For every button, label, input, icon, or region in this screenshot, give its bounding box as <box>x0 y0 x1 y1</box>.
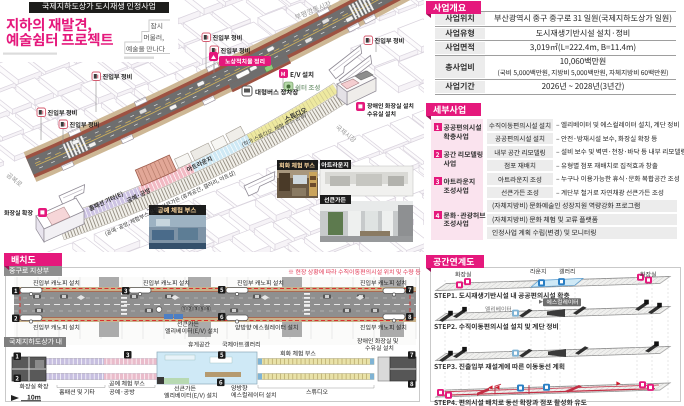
svg-text:화장실 확장: 화장실 확장 <box>20 382 49 391</box>
svg-text:◄◄: ◄◄ <box>487 382 501 392</box>
svg-text:쉼터 조성: 쉼터 조성 <box>295 82 320 92</box>
svg-text:예술을 만나다: 예술을 만나다 <box>126 44 166 54</box>
svg-text:STEP2. 수직이동편의시설 설치 및 계단 정비: STEP2. 수직이동편의시설 설치 및 계단 정비 <box>434 321 559 331</box>
svg-text:엘리베이터: 엘리베이터 <box>485 304 512 313</box>
svg-text:곰복로: 곰복로 <box>5 170 25 189</box>
svg-text:5: 5 <box>220 285 224 294</box>
svg-text:홈패션 및 기타: 홈패션 및 기타 <box>59 387 95 396</box>
svg-text:국제아트갤러리: 국제아트갤러리 <box>222 340 261 349</box>
svg-text:진입부 정비: 진입부 정비 <box>48 108 78 117</box>
svg-text:►: ► <box>615 378 622 388</box>
svg-text:진입부 정비: 진입부 정비 <box>375 36 405 45</box>
svg-text:진입부 정비: 진입부 정비 <box>213 33 243 42</box>
svg-text:화장실: 화장실 <box>455 269 472 278</box>
svg-text:수유실 설치: 수유실 설치 <box>365 343 394 352</box>
svg-text:진입부 정비: 진입부 정비 <box>70 120 100 129</box>
svg-text:①②③⑤⑥: ①②③⑤⑥ <box>181 304 211 313</box>
svg-text:공예·공방: 공예·공방 <box>109 387 135 396</box>
svg-text:1: 1 <box>14 286 18 295</box>
svg-text:7: 7 <box>410 350 414 359</box>
svg-text:8: 8 <box>410 379 414 388</box>
svg-text:10m: 10m <box>27 392 41 402</box>
svg-text:※ 현장 상황에 따라 수직이동편의시설 위치 및 수량 등: ※ 현장 상황에 따라 수직이동편의시설 위치 및 수량 등 변경될 수 있음 <box>288 267 421 276</box>
svg-text:엘리베이터(E/V) 설치: 엘리베이터(E/V) 설치 <box>164 391 217 400</box>
svg-text:잠시: 잠시 <box>150 21 163 31</box>
svg-text:노상적치물 정리: 노상적치물 정리 <box>225 57 265 66</box>
svg-text:갤러리: 갤러리 <box>559 266 576 275</box>
svg-text:휴게공간: 휴게공간 <box>188 340 211 349</box>
svg-text:회화 체험 부스: 회화 체험 부스 <box>279 161 315 170</box>
svg-text:공예 체험 부스: 공예 체험 부스 <box>109 379 145 388</box>
svg-text:3: 3 <box>124 286 128 295</box>
svg-text:진입부 캐노피 설치: 진입부 캐노피 설치 <box>33 323 80 332</box>
svg-text:화장실: 화장실 <box>640 269 657 278</box>
svg-text:회화 체험 부스: 회화 체험 부스 <box>280 349 316 358</box>
svg-text:1: 1 <box>15 351 19 360</box>
svg-text:진입부 캐노피 설치: 진입부 캐노피 설치 <box>360 278 407 287</box>
svg-text:7: 7 <box>408 285 412 294</box>
svg-text:6: 6 <box>220 312 224 321</box>
svg-text:STEP3. 진출입부 재설계에 따른 이동동선 계획: STEP3. 진출입부 재설계에 따른 이동동선 계획 <box>434 361 565 371</box>
svg-text:라운지: 라운지 <box>530 266 547 275</box>
svg-text:진입부 정비: 진입부 정비 <box>221 46 251 55</box>
svg-text:화장실 확장: 화장실 확장 <box>4 208 33 217</box>
svg-text:에스컬레이터: 에스컬레이터 <box>547 297 579 306</box>
svg-text:진입부 캐노피 설치: 진입부 캐노피 설치 <box>143 278 190 287</box>
svg-text:에스컬레이터 설치: 에스컬레이터 설치 <box>231 390 277 399</box>
svg-text:진입부 정비: 진입부 정비 <box>103 72 133 81</box>
svg-text:머물러,: 머물러, <box>143 32 164 42</box>
svg-text:진입부 캐노피 설치: 진입부 캐노피 설치 <box>33 278 80 287</box>
svg-text:5: 5 <box>220 350 224 359</box>
svg-text:진입부 캐노피 설치: 진입부 캐노피 설치 <box>360 323 407 332</box>
svg-text:3: 3 <box>126 350 130 359</box>
svg-text:STEP4. 편의시설 배치로 동선 확장과 점포 활성화: STEP4. 편의시설 배치로 동선 확장과 점포 활성화 유도 <box>434 397 587 406</box>
svg-text:6: 6 <box>219 378 223 387</box>
svg-text:양방향 에스컬레이터 설치: 양방향 에스컬레이터 설치 <box>235 323 298 332</box>
svg-text:M: M <box>281 70 286 78</box>
svg-text:스튜디오: 스튜디오 <box>306 387 329 396</box>
svg-text:E/V 설치: E/V 설치 <box>290 69 314 79</box>
svg-text:아트라운지: 아트라운지 <box>321 160 349 169</box>
svg-text:수유실 설치: 수유실 설치 <box>367 109 396 118</box>
svg-text:8: 8 <box>408 312 412 321</box>
svg-text:진입부 캐노피 설치: 진입부 캐노피 설치 <box>237 278 284 287</box>
svg-text:2: 2 <box>14 313 18 322</box>
svg-text:엘리베이터(E/V) 설치: 엘리베이터(E/V) 설치 <box>165 326 218 335</box>
svg-text:대형버스 정차장: 대형버스 정차장 <box>255 87 298 97</box>
svg-text:선큰가든: 선큰가든 <box>324 195 347 204</box>
